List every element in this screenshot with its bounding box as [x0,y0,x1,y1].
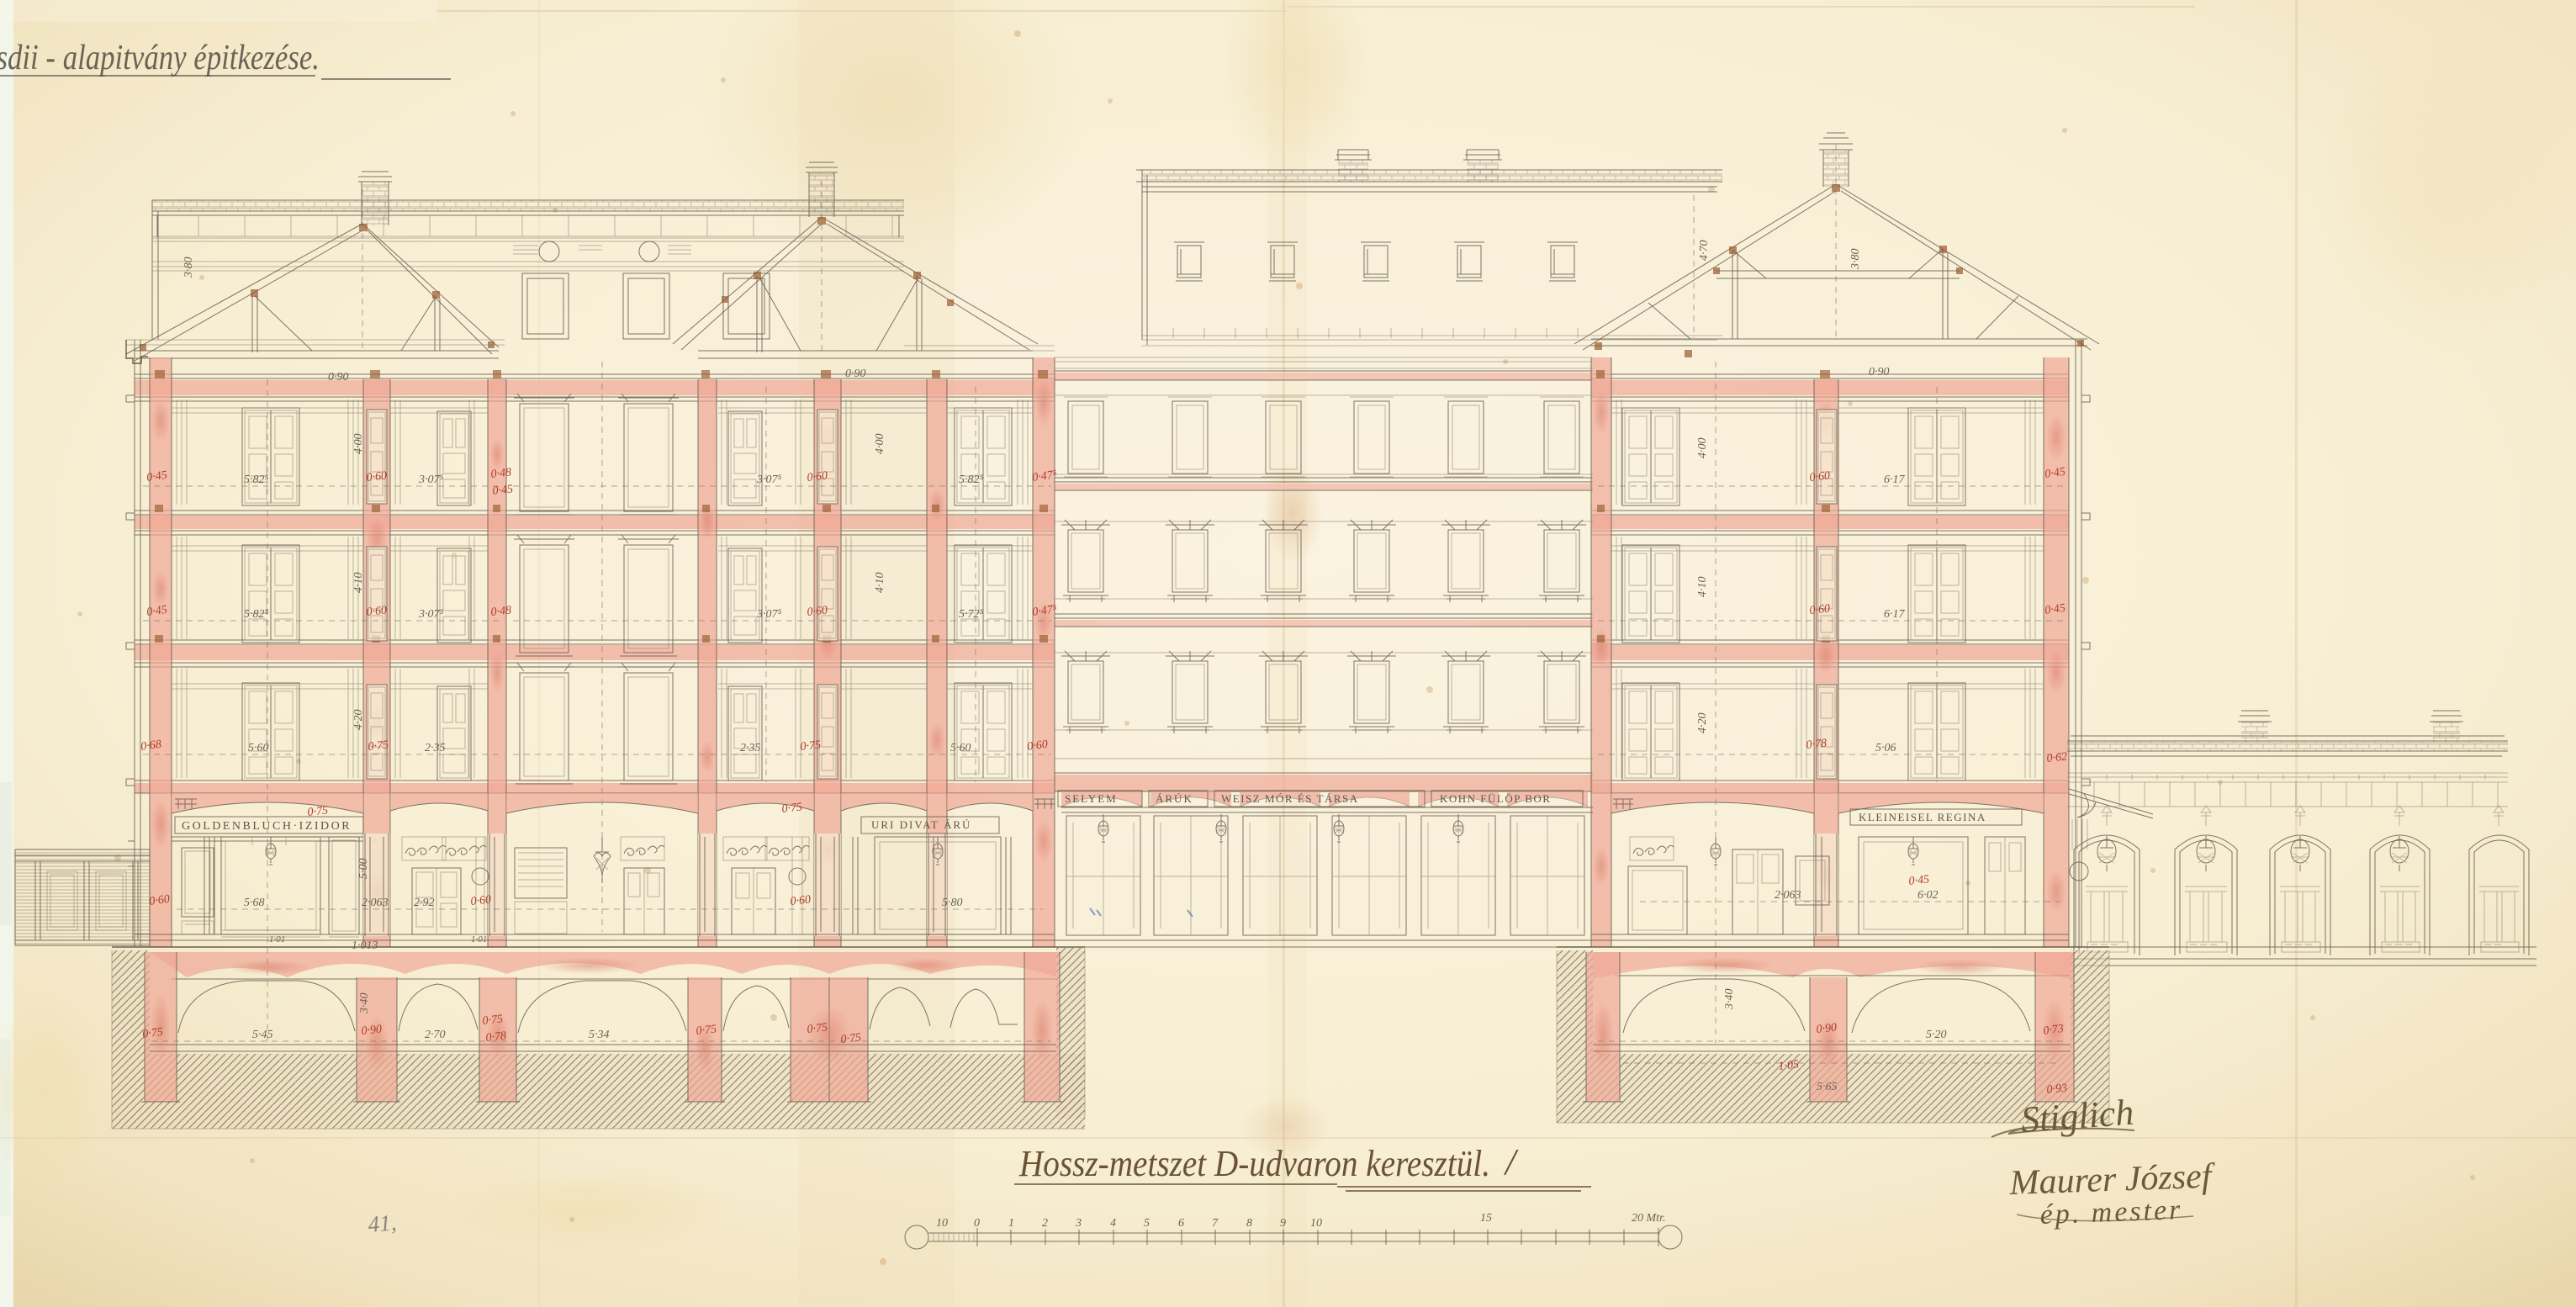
svg-text:5·20: 5·20 [1926,1029,1947,1041]
svg-text:4·00: 4·00 [352,434,365,455]
svg-text:0·60: 0·60 [1809,469,1831,484]
svg-text:8: 8 [1246,1217,1252,1230]
svg-text:5·60: 5·60 [248,742,269,754]
svg-text:0·48: 0·48 [490,466,512,480]
svg-text:0·90: 0·90 [845,368,866,380]
svg-text:2·92: 2·92 [414,897,435,909]
svg-text:7: 7 [1212,1217,1219,1230]
svg-text:0·90: 0·90 [328,371,349,384]
svg-text:41,: 41, [367,1209,397,1237]
svg-text:0·90: 0·90 [1869,366,1890,378]
svg-text:0·78: 0·78 [485,1029,507,1044]
svg-text:2·063: 2·063 [1775,889,1801,902]
svg-text:0·75: 0·75 [482,1013,504,1027]
svg-text:3·07⁵: 3·07⁵ [756,608,782,621]
svg-text:5·82⁵: 5·82⁵ [959,474,984,486]
svg-text:15: 15 [1480,1212,1492,1225]
svg-text:0·75: 0·75 [800,738,822,753]
svg-text:4·00: 4·00 [1696,438,1709,459]
svg-text:3·40: 3·40 [358,993,371,1015]
svg-text:4·20: 4·20 [352,710,365,731]
svg-text:5·06: 5·06 [1875,742,1896,754]
svg-text:0·60: 0·60 [366,604,388,618]
svg-text:2·70: 2·70 [425,1029,446,1041]
svg-text:5: 5 [1144,1217,1150,1230]
svg-text:5·60: 5·60 [950,742,971,754]
svg-text:5·82⁵: 5·82⁵ [244,474,269,486]
svg-text:1: 1 [1008,1217,1014,1230]
svg-text:3·40: 3·40 [1723,989,1736,1011]
svg-text:0·45: 0·45 [1908,873,1930,887]
svg-text:3·07⁵: 3·07⁵ [418,608,444,621]
svg-text:0·60: 0·60 [366,469,388,484]
svg-text:SELYEM: SELYEM [1065,792,1118,805]
svg-text:1·013: 1·013 [352,939,378,952]
svg-text:0·75: 0·75 [696,1023,717,1037]
svg-text:0·45: 0·45 [492,483,514,497]
svg-text:0·60: 0·60 [807,469,828,484]
svg-text:3: 3 [1075,1217,1082,1230]
svg-text:csdii - alapitvány épitkezése.: csdii - alapitvány épitkezése. [0,39,320,77]
svg-text:5·00: 5·00 [357,859,370,880]
svg-text:3·07⁵: 3·07⁵ [756,474,782,486]
svg-text:0·62: 0·62 [2046,750,2068,765]
svg-text:6·17: 6·17 [1884,474,1906,486]
svg-text:Hossz-metszet D-udvaron keresz: Hossz-metszet D-udvaron keresztül. [1018,1143,1490,1184]
svg-text:Stiglich: Stiglich [2019,1092,2135,1140]
svg-text:4·10: 4·10 [1696,577,1709,598]
svg-text:URI DIVAT ÁRÚ: URI DIVAT ÁRÚ [871,818,971,831]
svg-text:KOHN FÜLÖP BOR: KOHN FÜLÖP BOR [1440,792,1551,805]
svg-text:0·75: 0·75 [781,801,803,815]
svg-text:4·10: 4·10 [874,573,886,594]
svg-text:1·01: 1·01 [471,934,487,945]
svg-text:0·90: 0·90 [1816,1021,1838,1035]
svg-text:4·00: 4·00 [874,434,886,455]
svg-text:4·70: 4·70 [1698,241,1711,262]
svg-text:2·063: 2·063 [362,897,389,909]
svg-text:3·07⁵: 3·07⁵ [418,474,444,486]
svg-text:0·60: 0·60 [790,893,812,907]
svg-text:1·05: 1·05 [1778,1058,1800,1072]
svg-text:3·80: 3·80 [182,257,195,279]
svg-text:5·65: 5·65 [1817,1081,1838,1093]
svg-text:WEISZ MÓR ÉS TÁRSA: WEISZ MÓR ÉS TÁRSA [1221,792,1359,805]
svg-text:Maurer József: Maurer József [2008,1156,2217,1203]
svg-text:5·45: 5·45 [252,1029,273,1041]
svg-text:GOLDENBLUCH·IZIDOR: GOLDENBLUCH·IZIDOR [182,820,352,833]
svg-text:20 Mtr.: 20 Mtr. [1632,1212,1665,1225]
svg-text:0·60: 0·60 [807,604,828,618]
svg-text:0·60: 0·60 [470,893,492,907]
svg-text:0·75: 0·75 [840,1031,862,1045]
svg-text:9: 9 [1280,1217,1286,1230]
svg-text:0: 0 [974,1217,980,1230]
svg-text:6: 6 [1178,1217,1184,1230]
svg-text:6·02: 6·02 [1917,889,1939,902]
svg-text:0·60: 0·60 [1809,602,1831,616]
svg-text:10: 10 [936,1217,948,1230]
svg-text:KLEINEISEL REGINA: KLEINEISEL REGINA [1859,811,1986,823]
svg-text:10: 10 [1310,1217,1322,1230]
svg-text:2·35: 2·35 [425,742,446,754]
svg-text:5·82⁵: 5·82⁵ [244,608,269,621]
svg-text:0·48: 0·48 [490,604,512,618]
svg-text:6·17: 6·17 [1884,608,1906,621]
svg-text:3·80: 3·80 [1849,249,1862,271]
svg-text:5·34: 5·34 [589,1029,610,1041]
svg-text:0·75: 0·75 [307,804,329,818]
svg-text:2: 2 [1042,1217,1048,1230]
svg-text:4: 4 [1110,1217,1116,1230]
svg-text:5·80: 5·80 [942,897,963,909]
svg-text:5·72⁵: 5·72⁵ [959,608,984,621]
svg-text:2·35: 2·35 [740,742,761,754]
svg-text:0·93: 0·93 [2046,1082,2068,1096]
svg-text:ÁRÚK: ÁRÚK [1156,792,1193,805]
svg-text:0·78: 0·78 [1806,737,1828,751]
svg-text:0·90: 0·90 [361,1023,383,1037]
svg-text:ép. mester: ép. mester [2039,1194,2183,1230]
svg-text:0·75: 0·75 [807,1021,828,1035]
svg-text:1·01: 1·01 [269,934,285,945]
svg-text:4·20: 4·20 [1696,713,1709,734]
svg-text:4·10: 4·10 [352,573,365,594]
svg-text:0·75: 0·75 [368,738,389,753]
svg-text:5·68: 5·68 [244,897,265,909]
